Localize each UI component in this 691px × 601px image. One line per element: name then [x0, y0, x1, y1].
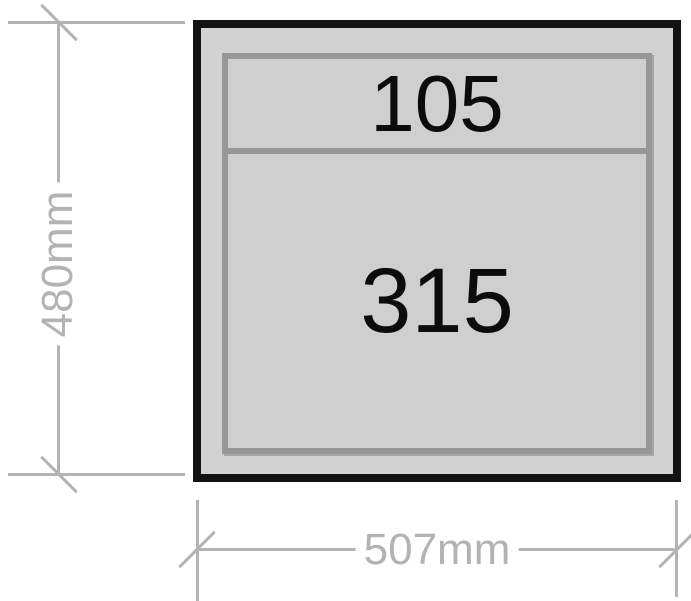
cabinet-outline: 105 315 — [193, 20, 681, 482]
height-extension-line-bottom — [8, 473, 185, 476]
section-bottom-label: 315 — [360, 255, 514, 347]
height-dimension-label: 480mm — [35, 183, 81, 346]
section-bottom: 315 — [228, 154, 646, 448]
section-top: 105 — [228, 59, 646, 148]
diagram-canvas: 105 315 480mm 507mm — [0, 0, 691, 601]
section-top-label: 105 — [370, 64, 503, 144]
height-extension-line-top — [8, 21, 185, 24]
front-panel: 105 315 — [222, 53, 652, 454]
width-dimension-label: 507mm — [356, 527, 519, 573]
